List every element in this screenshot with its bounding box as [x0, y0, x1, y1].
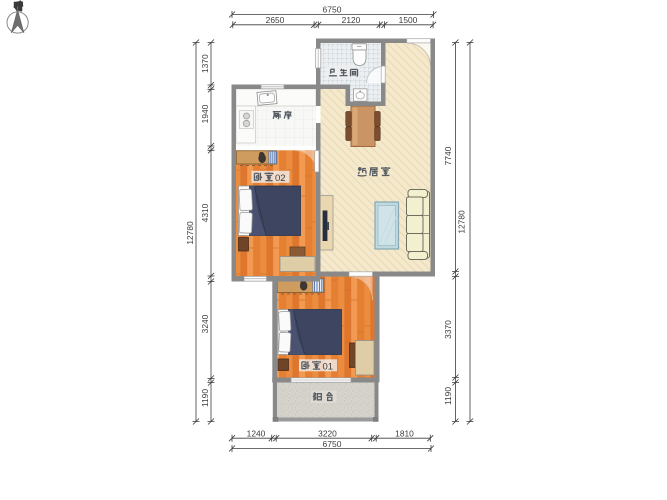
svg-text:1500: 1500: [399, 15, 418, 25]
svg-text:3370: 3370: [443, 320, 453, 339]
svg-text:7740: 7740: [443, 146, 453, 165]
svg-text:1940: 1940: [200, 104, 210, 123]
svg-text:12780: 12780: [185, 221, 195, 245]
svg-text:3220: 3220: [318, 429, 337, 439]
svg-text:2120: 2120: [342, 15, 361, 25]
svg-text:2650: 2650: [266, 15, 285, 25]
svg-text:1240: 1240: [247, 429, 266, 439]
svg-text:4310: 4310: [200, 203, 210, 222]
svg-text:6750: 6750: [323, 439, 342, 449]
svg-text:6750: 6750: [323, 4, 342, 14]
svg-text:02: 02: [275, 173, 286, 184]
svg-text:1190: 1190: [443, 387, 453, 405]
svg-text:3240: 3240: [200, 314, 210, 333]
svg-text:1190: 1190: [200, 389, 210, 407]
svg-text:12780: 12780: [457, 210, 467, 234]
svg-text:1370: 1370: [200, 54, 210, 73]
svg-text:01: 01: [323, 362, 334, 373]
svg-text:1810: 1810: [395, 429, 414, 439]
